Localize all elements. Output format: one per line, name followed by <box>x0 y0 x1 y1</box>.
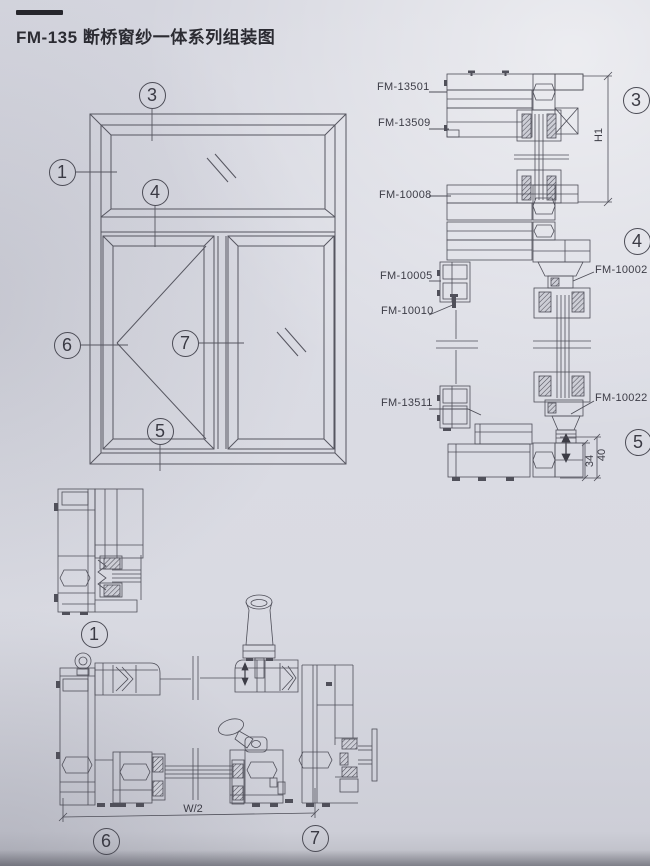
vertical-section <box>429 71 612 482</box>
part-label-fm13511: FM-13511 <box>381 397 433 409</box>
window-handle-top <box>243 595 275 678</box>
photo-shadow <box>0 850 650 866</box>
glass-symbol <box>207 154 236 182</box>
callout-6: 6 <box>54 332 81 359</box>
lock-arrow <box>242 663 248 685</box>
callout-3-section: 3 <box>623 87 650 114</box>
callout-3: 3 <box>139 82 166 109</box>
screen-roller-knob <box>75 653 91 675</box>
callout-5-section: 5 <box>625 429 650 456</box>
glass-symbol <box>277 328 306 356</box>
part-label-fm10008: FM-10008 <box>379 189 432 201</box>
dim-label-h1: H1 <box>593 123 605 147</box>
part-label-fm13501: FM-13501 <box>377 81 430 93</box>
callout-1: 1 <box>49 159 76 186</box>
drawing-canvas <box>0 0 650 866</box>
scanned-drawing-page: FM-135 断桥窗纱一体系列组装图 <box>0 0 650 866</box>
callout-7: 7 <box>172 330 199 357</box>
dim-label-34: 34 <box>584 449 596 473</box>
part-label-fm10002: FM-10002 <box>595 264 648 276</box>
callout-4: 4 <box>142 179 169 206</box>
callout-4-section: 4 <box>624 228 650 255</box>
part-label-fm10005: FM-10005 <box>380 270 433 282</box>
dim-label-40: 40 <box>596 443 608 467</box>
corner-detail-section <box>54 489 143 615</box>
part-label-fm10010: FM-10010 <box>381 305 434 317</box>
callout-5: 5 <box>147 418 174 445</box>
dim-label-w2: W/2 <box>176 803 210 815</box>
window-elevation <box>76 109 346 471</box>
callout-1-detail: 1 <box>81 621 108 648</box>
part-label-fm10022: FM-10022 <box>595 392 648 404</box>
callout-7-detail: 7 <box>302 825 329 852</box>
window-handle-side <box>216 716 267 752</box>
part-label-fm13509: FM-13509 <box>378 117 431 129</box>
